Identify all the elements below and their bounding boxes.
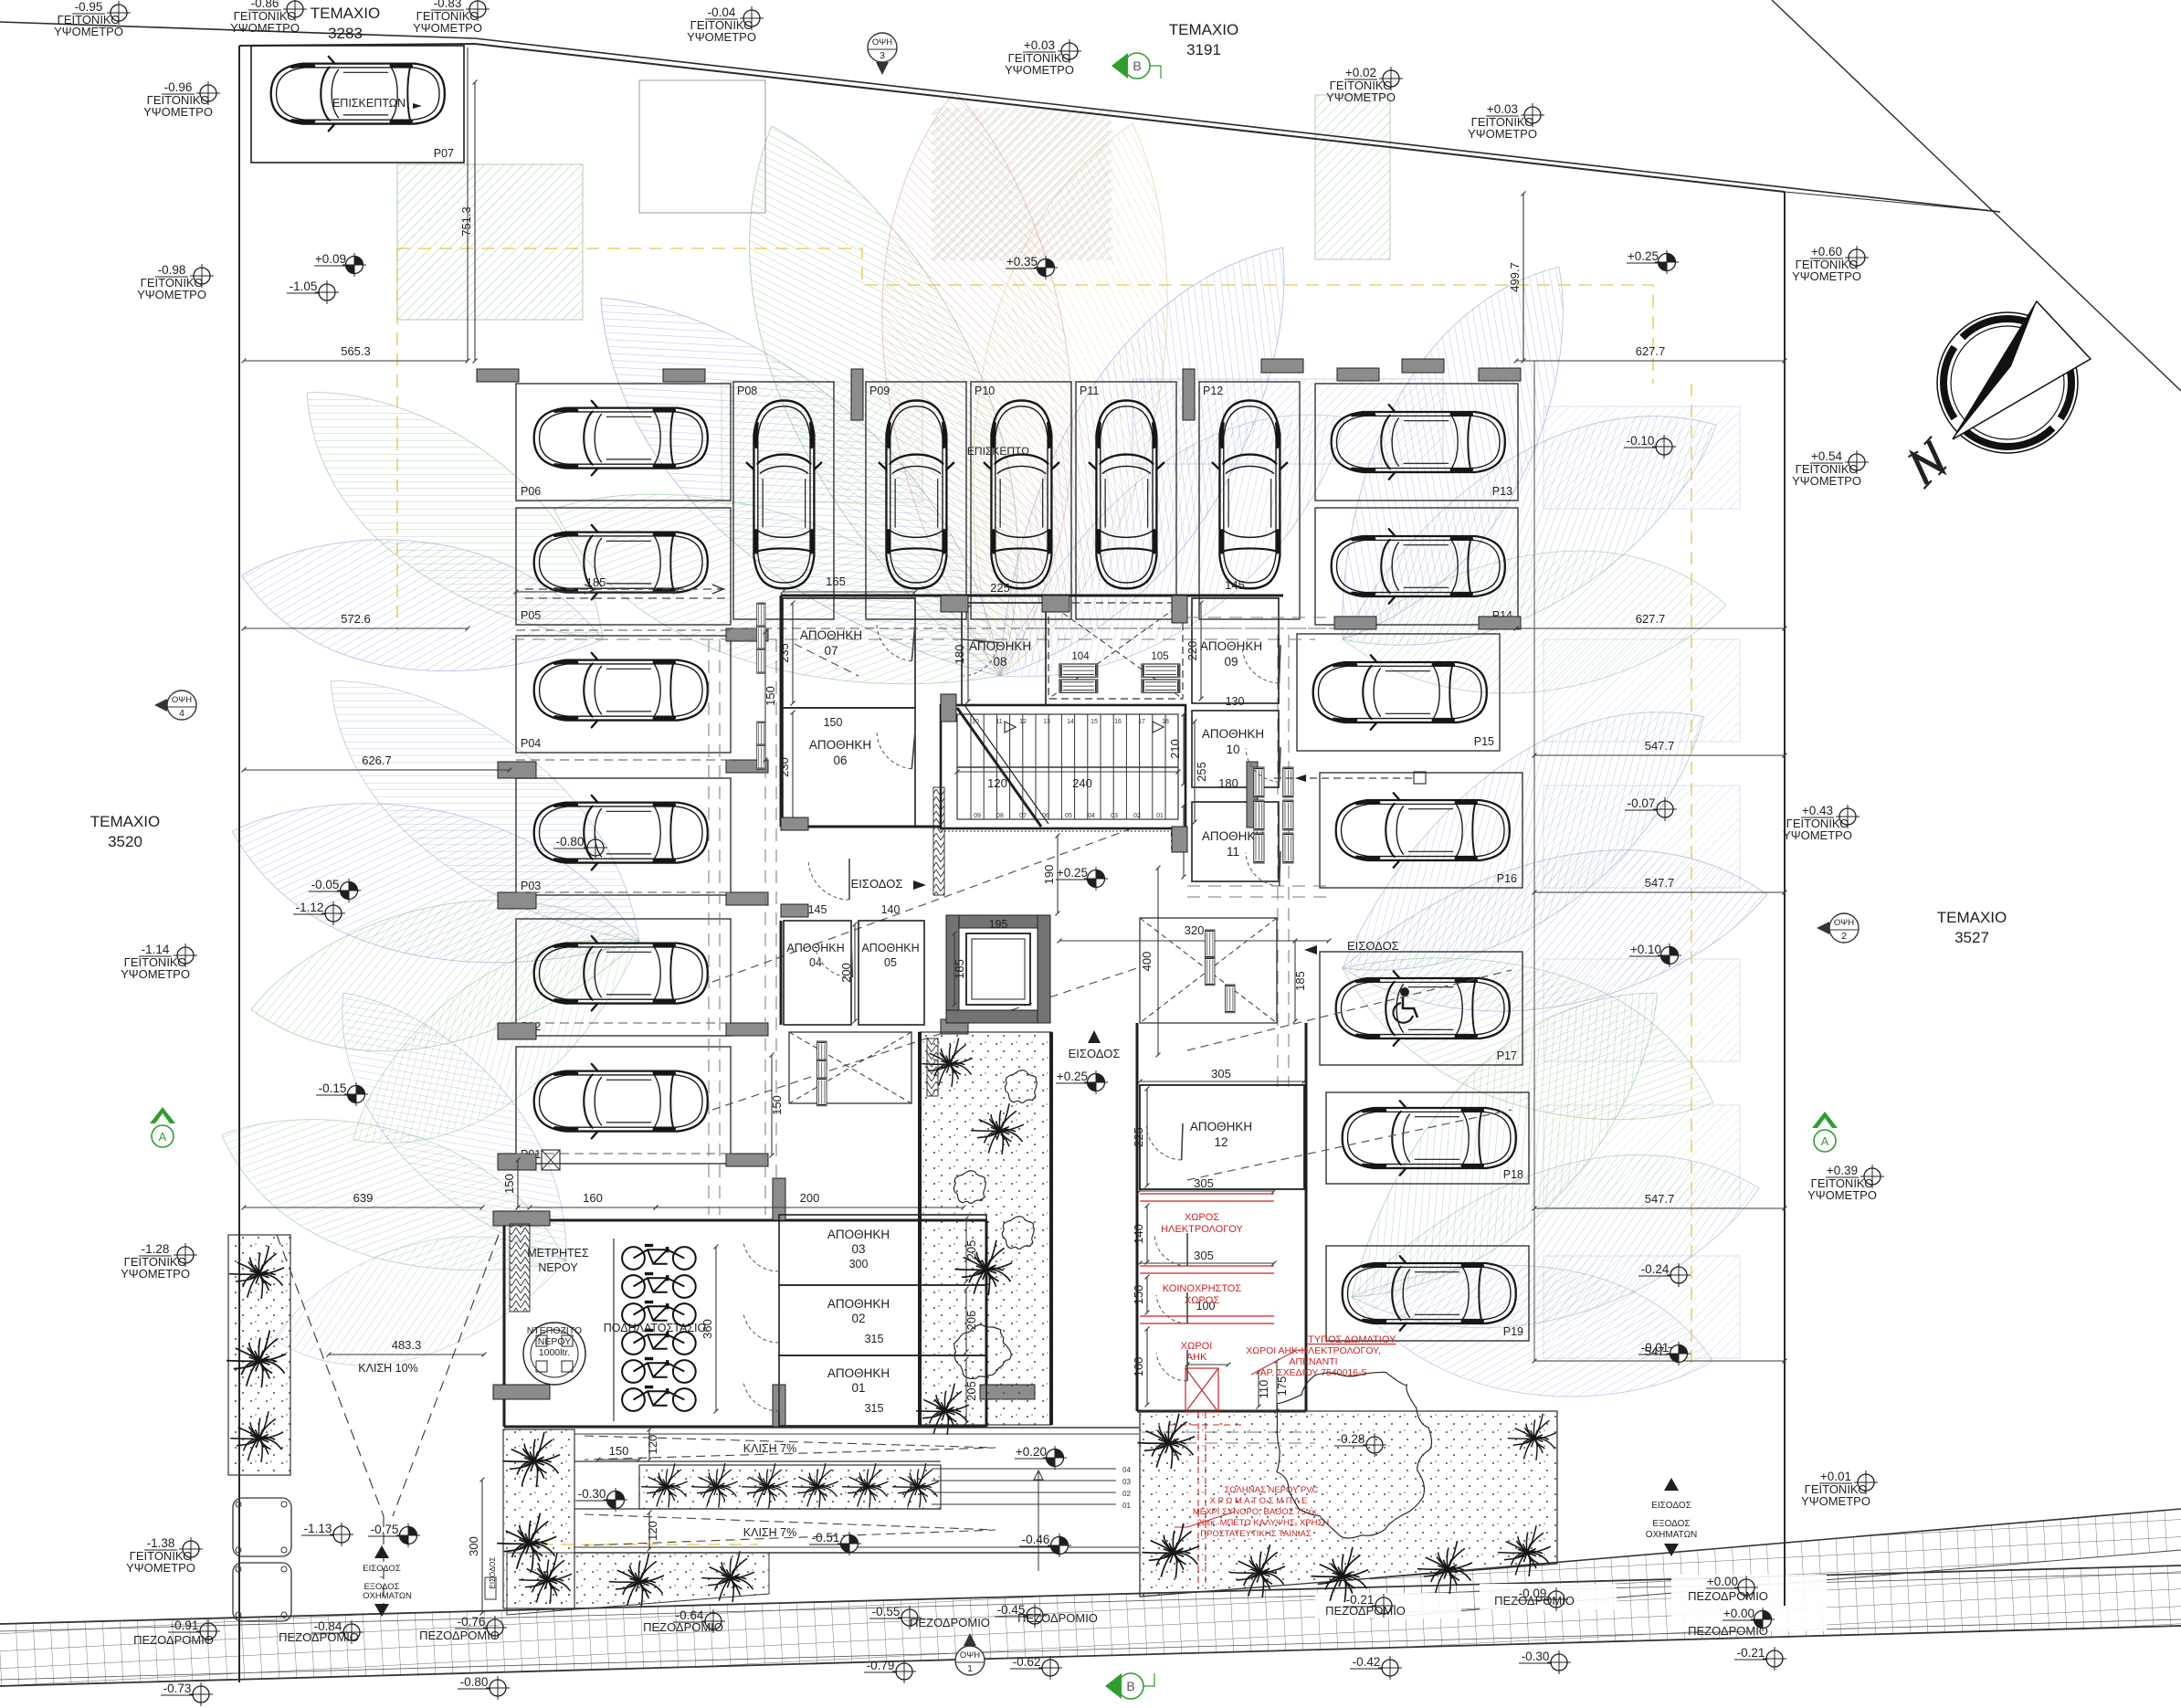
svg-text:160: 160 bbox=[583, 1191, 603, 1205]
svg-text:195: 195 bbox=[989, 918, 1008, 931]
svg-text:ΥΨΟΜΕΤΡΟ: ΥΨΟΜΕΤΡΟ bbox=[1792, 269, 1861, 283]
svg-text:03: 03 bbox=[1122, 1478, 1131, 1486]
svg-text:ΗΛΕΚΤΡΟΛΟΓΟΥ: ΗΛΕΚΤΡΟΛΟΓΟΥ bbox=[1161, 1224, 1243, 1235]
svg-text:320: 320 bbox=[1185, 923, 1205, 937]
svg-text:P10: P10 bbox=[975, 385, 995, 397]
svg-text:ΝΤΕΠΟΖΙΤΟ: ΝΤΕΠΟΖΙΤΟ bbox=[527, 1325, 582, 1336]
svg-text:-0.62: -0.62 bbox=[1013, 1655, 1041, 1669]
svg-text:-0.28: -0.28 bbox=[1337, 1432, 1365, 1446]
svg-text:-0.75: -0.75 bbox=[371, 1523, 399, 1536]
svg-text:-0.45: -0.45 bbox=[997, 1603, 1026, 1617]
svg-text:-0.07: -0.07 bbox=[1628, 796, 1656, 810]
svg-text:P15: P15 bbox=[1474, 735, 1494, 748]
svg-text:ΑΠΟΘΗΚΗ: ΑΠΟΘΗΚΗ bbox=[809, 738, 871, 752]
svg-text:11: 11 bbox=[996, 719, 1002, 725]
svg-text:P03: P03 bbox=[521, 880, 541, 892]
svg-text:120: 120 bbox=[987, 776, 1007, 790]
svg-text:ΧΩΡΟΙ ΑΗΚ-ΗΛΕΚΤΡΟΛΟΓΟΥ,: ΧΩΡΟΙ ΑΗΚ-ΗΛΕΚΤΡΟΛΟΓΟΥ, bbox=[1246, 1345, 1381, 1356]
svg-text:-0.24: -0.24 bbox=[1641, 1262, 1670, 1276]
svg-text:-1.13: -1.13 bbox=[304, 1522, 332, 1535]
svg-text:626.7: 626.7 bbox=[362, 754, 392, 767]
svg-text:07: 07 bbox=[1019, 813, 1027, 819]
svg-text:10: 10 bbox=[972, 719, 979, 725]
svg-text:240: 240 bbox=[1072, 776, 1092, 790]
svg-text:547.7: 547.7 bbox=[1645, 1192, 1675, 1206]
svg-text:ΤΕΜΑΧΙΟ: ΤΕΜΑΧΙΟ bbox=[1937, 909, 2007, 926]
svg-text:ΕΠΙΣΚΕΠΤΩΝ: ΕΠΙΣΚΕΠΤΩΝ bbox=[332, 97, 406, 110]
svg-text:130: 130 bbox=[1226, 695, 1245, 708]
svg-text:150: 150 bbox=[609, 1444, 629, 1458]
svg-text:ΕΙΣΟΔΟΣ: ΕΙΣΟΔΟΣ bbox=[1069, 1047, 1121, 1060]
svg-text:-0.30: -0.30 bbox=[1522, 1650, 1550, 1663]
svg-text:547.7: 547.7 bbox=[1645, 876, 1675, 890]
svg-text:ΟΨΗ: ΟΨΗ bbox=[960, 1650, 980, 1661]
svg-text:ΥΨΟΜΕΤΡΟ: ΥΨΟΜΕΤΡΟ bbox=[54, 25, 123, 38]
svg-text:-0.84: -0.84 bbox=[314, 1619, 342, 1633]
svg-text:09: 09 bbox=[974, 813, 981, 819]
svg-text:145: 145 bbox=[808, 903, 827, 916]
svg-text:305: 305 bbox=[1194, 1176, 1214, 1190]
svg-text:ΠΟΔΗΛΑΤΟΣΤΑΣΙΟ: ΠΟΔΗΛΑΤΟΣΤΑΣΙΟ bbox=[604, 1322, 707, 1334]
svg-text:-0.96: -0.96 bbox=[164, 80, 193, 94]
svg-text:225: 225 bbox=[990, 581, 1010, 595]
svg-text:400: 400 bbox=[1140, 952, 1154, 972]
svg-text:ΜΕΤΡΗΤΕΣ: ΜΕΤΡΗΤΕΣ bbox=[527, 1247, 589, 1260]
svg-text:ΧΩΡΟΣ: ΧΩΡΟΣ bbox=[1185, 1295, 1219, 1306]
svg-text:180: 180 bbox=[953, 645, 966, 665]
svg-text:+0.43: +0.43 bbox=[1802, 804, 1833, 817]
svg-text:P08: P08 bbox=[737, 385, 757, 397]
svg-text:08: 08 bbox=[996, 813, 1004, 819]
svg-text:547.7: 547.7 bbox=[1645, 739, 1675, 753]
svg-text:-1.12: -1.12 bbox=[296, 901, 324, 914]
svg-text:B: B bbox=[1133, 58, 1141, 73]
svg-text:ΠΕΖΟΔΡΟΜΙΟ: ΠΕΖΟΔΡΟΜΙΟ bbox=[1688, 1589, 1768, 1603]
svg-text:+0.20: +0.20 bbox=[1016, 1445, 1047, 1459]
svg-text:-0.21: -0.21 bbox=[1346, 1593, 1375, 1607]
svg-text:ΥΨΟΜΕΤΡΟ: ΥΨΟΜΕΤΡΟ bbox=[687, 30, 756, 44]
svg-text:-0.05: -0.05 bbox=[311, 878, 340, 891]
svg-text:-0.09: -0.09 bbox=[1519, 1587, 1547, 1600]
svg-text:-0.04: -0.04 bbox=[708, 5, 736, 19]
svg-text:-0.10: -0.10 bbox=[1627, 434, 1655, 448]
svg-text:ΥΨΟΜΕΤΡΟ: ΥΨΟΜΕΤΡΟ bbox=[1326, 90, 1396, 104]
svg-text:P11: P11 bbox=[1080, 385, 1099, 397]
svg-text:12: 12 bbox=[1019, 719, 1027, 725]
svg-text:ΟΨΗ: ΟΨΗ bbox=[172, 695, 192, 705]
svg-text:P09: P09 bbox=[869, 385, 890, 397]
svg-text:ΤΕΜΑΧΙΟ: ΤΕΜΑΧΙΟ bbox=[311, 5, 381, 22]
svg-text:01: 01 bbox=[1122, 1502, 1131, 1510]
svg-text:-0.01: -0.01 bbox=[1641, 1341, 1670, 1355]
svg-text:P16: P16 bbox=[1497, 872, 1517, 885]
svg-text:ΥΨΟΜΕΤΡΟ: ΥΨΟΜΕΤΡΟ bbox=[413, 21, 482, 35]
svg-text:ΥΨΟΜΕΤΡΟ: ΥΨΟΜΕΤΡΟ bbox=[121, 1267, 190, 1281]
svg-text:190: 190 bbox=[1042, 865, 1056, 885]
svg-text:+0.39: +0.39 bbox=[1827, 1164, 1858, 1177]
svg-text:ΟΨΗ: ΟΨΗ bbox=[1834, 918, 1854, 928]
svg-text:ΥΨΟΜΕΤΡΟ: ΥΨΟΜΕΤΡΟ bbox=[1468, 127, 1537, 141]
svg-text:ΤΥΠΟΣ ΔΩΜΑΤΙΟΥ: ΤΥΠΟΣ ΔΩΜΑΤΙΟΥ bbox=[1308, 1334, 1396, 1345]
svg-text:180: 180 bbox=[1218, 776, 1238, 790]
svg-text:ΑΠΟΘΗΚΗ: ΑΠΟΘΗΚΗ bbox=[827, 1366, 890, 1380]
svg-text:150: 150 bbox=[824, 716, 843, 729]
svg-text:-0.73: -0.73 bbox=[163, 1682, 192, 1695]
svg-text:+0.60: +0.60 bbox=[1811, 245, 1842, 258]
svg-text:300: 300 bbox=[849, 1258, 869, 1270]
svg-text:-1.28: -1.28 bbox=[142, 1242, 170, 1256]
svg-text:A: A bbox=[159, 1130, 167, 1144]
svg-text:160: 160 bbox=[1132, 1357, 1145, 1377]
svg-text:751.3: 751.3 bbox=[459, 206, 473, 237]
svg-text:07: 07 bbox=[824, 644, 838, 658]
svg-text:3: 3 bbox=[880, 50, 885, 61]
svg-text:572.6: 572.6 bbox=[341, 612, 371, 626]
svg-text:16: 16 bbox=[1114, 719, 1122, 725]
svg-text:105: 105 bbox=[1151, 651, 1168, 662]
svg-text:01: 01 bbox=[1156, 813, 1164, 819]
svg-text:3191: 3191 bbox=[1186, 41, 1221, 58]
svg-text:ΚΛΙΣΗ 10%: ΚΛΙΣΗ 10% bbox=[358, 1362, 417, 1375]
svg-text:ΟΧΗΜΑΤΩΝ: ΟΧΗΜΑΤΩΝ bbox=[363, 1591, 412, 1601]
svg-text:ΤΕΜΑΧΙΟ: ΤΕΜΑΧΙΟ bbox=[1169, 21, 1239, 38]
svg-text:200: 200 bbox=[839, 963, 853, 983]
svg-text:ΑΠΟΘΗΚΗ: ΑΠΟΘΗΚΗ bbox=[827, 1228, 890, 1241]
svg-text:ΕΙΣΟΔΟΣ: ΕΙΣΟΔΟΣ bbox=[1651, 1501, 1691, 1511]
svg-text:+0.25: +0.25 bbox=[1057, 866, 1088, 880]
svg-text:220: 220 bbox=[1185, 641, 1199, 661]
svg-text:230: 230 bbox=[777, 757, 791, 777]
svg-text:P13: P13 bbox=[1492, 485, 1512, 498]
svg-text:-0.91: -0.91 bbox=[171, 1618, 199, 1632]
svg-text:ΕΠΙΣΚΕΠΤΩ: ΕΠΙΣΚΕΠΤΩ bbox=[967, 445, 1029, 458]
svg-text:175: 175 bbox=[1275, 1376, 1289, 1397]
svg-text:200: 200 bbox=[800, 1191, 820, 1205]
svg-text:150: 150 bbox=[502, 1174, 516, 1194]
svg-text:627.7: 627.7 bbox=[1636, 612, 1666, 626]
svg-text:483.3: 483.3 bbox=[392, 1338, 422, 1352]
svg-text:ΚΛΙΣΗ 7%: ΚΛΙΣΗ 7% bbox=[743, 1526, 796, 1539]
svg-text:120: 120 bbox=[646, 1521, 659, 1541]
svg-text:02: 02 bbox=[1122, 1490, 1131, 1498]
svg-text:02: 02 bbox=[851, 1312, 865, 1325]
svg-text:ΥΨΟΜΕΤΡΟ: ΥΨΟΜΕΤΡΟ bbox=[230, 21, 300, 35]
svg-text:ΑΠΟΘΗΚΗ: ΑΠΟΘΗΚΗ bbox=[1190, 1120, 1252, 1133]
svg-text:-0.76: -0.76 bbox=[458, 1615, 486, 1629]
svg-text:05: 05 bbox=[1065, 813, 1072, 819]
svg-text:P05: P05 bbox=[521, 609, 541, 622]
svg-text:315: 315 bbox=[865, 1402, 884, 1415]
svg-text:-1.14: -1.14 bbox=[142, 943, 170, 956]
svg-text:140: 140 bbox=[881, 903, 901, 916]
svg-text:ΥΨΟΜΕΤΡΟ: ΥΨΟΜΕΤΡΟ bbox=[126, 1561, 195, 1575]
svg-text:B: B bbox=[1126, 1679, 1134, 1693]
svg-text:02: 02 bbox=[1133, 813, 1141, 819]
svg-text:210: 210 bbox=[1168, 739, 1182, 759]
svg-text:-0.46: -0.46 bbox=[1022, 1533, 1050, 1546]
svg-text:150: 150 bbox=[764, 686, 777, 706]
svg-text:1: 1 bbox=[967, 1663, 973, 1674]
svg-text:300: 300 bbox=[467, 1536, 480, 1556]
svg-text:P17: P17 bbox=[1497, 1049, 1517, 1062]
svg-text:ΠΕΖΟΔΡΟΜΙΟ: ΠΕΖΟΔΡΟΜΙΟ bbox=[1688, 1624, 1768, 1638]
svg-text:ΟΧΗΜΑΤΩΝ: ΟΧΗΜΑΤΩΝ bbox=[1646, 1530, 1698, 1540]
svg-text:1000ltr.: 1000ltr. bbox=[539, 1347, 570, 1358]
svg-text:2: 2 bbox=[1841, 931, 1847, 942]
svg-text:04: 04 bbox=[809, 956, 822, 969]
svg-text:01: 01 bbox=[851, 1381, 865, 1395]
svg-text:565.3: 565.3 bbox=[341, 344, 371, 358]
svg-text:-0.21: -0.21 bbox=[1737, 1646, 1765, 1660]
svg-text:ΥΨΟΜΕΤΡΟ: ΥΨΟΜΕΤΡΟ bbox=[1005, 63, 1074, 77]
svg-text:305: 305 bbox=[1211, 1067, 1231, 1081]
svg-text:P19: P19 bbox=[1503, 1325, 1523, 1338]
svg-text:ΕΙΣΟΔΟΣ: ΕΙΣΟΔΟΣ bbox=[1347, 939, 1399, 953]
svg-text:ΑΠΟΘΗΚΗ: ΑΠΟΘΗΚΗ bbox=[827, 1297, 890, 1311]
svg-text:-0.30: -0.30 bbox=[578, 1487, 606, 1501]
svg-text:120: 120 bbox=[646, 1435, 659, 1455]
svg-text:ΥΨΟΜΕΤΡΟ: ΥΨΟΜΕΤΡΟ bbox=[1801, 1494, 1870, 1508]
svg-text:14: 14 bbox=[1067, 719, 1074, 725]
svg-text:150: 150 bbox=[1132, 1285, 1145, 1305]
svg-text:+0.35: +0.35 bbox=[1006, 255, 1038, 269]
svg-text:ΑΠΟΘΗΚΗ: ΑΠΟΘΗΚΗ bbox=[1200, 639, 1262, 653]
svg-text:499.7: 499.7 bbox=[1508, 262, 1522, 292]
svg-text:110: 110 bbox=[1257, 1380, 1270, 1399]
svg-text:13: 13 bbox=[1043, 719, 1050, 725]
svg-text:+0.03: +0.03 bbox=[1024, 38, 1055, 52]
svg-text:+0.00: +0.00 bbox=[1707, 1575, 1738, 1588]
svg-text:ΑΠΟΘΗΚΗ: ΑΠΟΘΗΚΗ bbox=[1202, 727, 1264, 741]
svg-text:ΑΠΟΘΗΚΗ: ΑΠΟΘΗΚΗ bbox=[800, 628, 862, 642]
svg-text:ΥΨΟΜΕΤΡΟ: ΥΨΟΜΕΤΡΟ bbox=[1783, 828, 1852, 842]
svg-text:-1.05: -1.05 bbox=[290, 279, 318, 293]
svg-text:4: 4 bbox=[179, 708, 184, 719]
svg-text:+0.54: +0.54 bbox=[1811, 449, 1843, 463]
svg-text:+0.02: +0.02 bbox=[1345, 66, 1376, 79]
svg-text:04: 04 bbox=[1088, 813, 1095, 819]
svg-text:-0.51: -0.51 bbox=[812, 1531, 840, 1545]
svg-text:639: 639 bbox=[353, 1191, 374, 1205]
svg-text:ΟΨΗ: ΟΨΗ bbox=[872, 37, 892, 47]
svg-text:+0.09: +0.09 bbox=[315, 252, 346, 266]
svg-text:-0.98: -0.98 bbox=[158, 263, 186, 277]
svg-text:11: 11 bbox=[1227, 845, 1239, 859]
svg-text:+0.01: +0.01 bbox=[1820, 1470, 1851, 1483]
svg-text:ΝΕΡΟΥ: ΝΕΡΟΥ bbox=[538, 1336, 571, 1347]
svg-text:ΧΩΡΟΣ: ΧΩΡΟΣ bbox=[1185, 1212, 1219, 1223]
svg-text:04: 04 bbox=[1122, 1466, 1131, 1474]
svg-text:+0.25: +0.25 bbox=[1057, 1070, 1088, 1083]
svg-text:ΥΨΟΜΕΤΡΟ: ΥΨΟΜΕΤΡΟ bbox=[143, 105, 213, 119]
svg-text:ΑΗΚ: ΑΗΚ bbox=[1186, 1352, 1207, 1363]
svg-text:-0.42: -0.42 bbox=[1353, 1655, 1381, 1669]
svg-text:305: 305 bbox=[1194, 1249, 1214, 1262]
svg-text:+0.03: +0.03 bbox=[1487, 102, 1518, 116]
svg-text:06: 06 bbox=[833, 754, 847, 767]
svg-text:140: 140 bbox=[1132, 1224, 1145, 1244]
svg-text:09: 09 bbox=[1224, 655, 1238, 669]
svg-text:+0.25: +0.25 bbox=[1628, 249, 1659, 263]
svg-text:ΝΕΡΟΥ: ΝΕΡΟΥ bbox=[538, 1261, 578, 1274]
svg-text:ΥΨΟΜΕΤΡΟ: ΥΨΟΜΕΤΡΟ bbox=[121, 967, 190, 981]
svg-text:P04: P04 bbox=[521, 737, 541, 750]
svg-text:-0.80: -0.80 bbox=[460, 1675, 489, 1689]
svg-text:185: 185 bbox=[1293, 971, 1307, 991]
svg-text:3283: 3283 bbox=[328, 25, 363, 42]
svg-text:-0.55: -0.55 bbox=[872, 1605, 901, 1618]
svg-text:P07: P07 bbox=[434, 147, 454, 160]
svg-text:17: 17 bbox=[1138, 719, 1145, 725]
svg-text:-0.15: -0.15 bbox=[319, 1081, 347, 1095]
svg-text:06: 06 bbox=[1042, 813, 1049, 819]
svg-text:-0.80: -0.80 bbox=[556, 835, 585, 849]
svg-text:315: 315 bbox=[865, 1333, 884, 1345]
svg-text:104: 104 bbox=[1071, 651, 1090, 662]
svg-text:ΕΞΟΔΟΣ: ΕΞΟΔΟΣ bbox=[1652, 1519, 1690, 1529]
svg-text:ΚΟΙΝΟΧΡΗΣΤΟΣ: ΚΟΙΝΟΧΡΗΣΤΟΣ bbox=[1163, 1283, 1242, 1294]
svg-text:ΠΕΖΟΔΡΟΜΙΟ: ΠΕΖΟΔΡΟΜΙΟ bbox=[910, 1616, 990, 1629]
svg-text:03: 03 bbox=[851, 1242, 865, 1256]
svg-text:18: 18 bbox=[1162, 719, 1169, 725]
svg-text:165: 165 bbox=[826, 575, 846, 588]
svg-text:-0.95: -0.95 bbox=[75, 0, 103, 14]
svg-text:05: 05 bbox=[884, 956, 897, 969]
svg-text:627.7: 627.7 bbox=[1636, 344, 1666, 358]
svg-text:150: 150 bbox=[770, 1095, 784, 1115]
svg-text:ΥΨΟΜΕΤΡΟ: ΥΨΟΜΕΤΡΟ bbox=[137, 288, 206, 301]
svg-text:P12: P12 bbox=[1203, 385, 1223, 397]
svg-text:3520: 3520 bbox=[108, 833, 142, 850]
svg-text:10: 10 bbox=[1226, 743, 1239, 756]
svg-text:ΚΛΙΣΗ 7%: ΚΛΙΣΗ 7% bbox=[743, 1442, 796, 1455]
svg-text:-0.79: -0.79 bbox=[867, 1659, 895, 1672]
svg-text:12: 12 bbox=[1214, 1135, 1227, 1149]
svg-text:ΠΕΖΟΔΡΟΜΙΟ: ΠΕΖΟΔΡΟΜΙΟ bbox=[1017, 1611, 1098, 1625]
svg-text:ΧΩΡΟΙ: ΧΩΡΟΙ bbox=[1181, 1341, 1213, 1352]
svg-text:03: 03 bbox=[1111, 813, 1118, 819]
svg-text:08: 08 bbox=[993, 655, 1006, 669]
svg-text:-1.38: -1.38 bbox=[147, 1536, 175, 1550]
svg-text:3527: 3527 bbox=[1954, 929, 1989, 946]
svg-text:+0.00: +0.00 bbox=[1723, 1607, 1754, 1620]
svg-text:A: A bbox=[1821, 1134, 1829, 1148]
svg-text:ΤΕΜΑΧΙΟ: ΤΕΜΑΧΙΟ bbox=[90, 813, 161, 830]
svg-text:ΑΠΟΘΗΚΗ: ΑΠΟΘΗΚΗ bbox=[861, 942, 919, 954]
svg-text:255: 255 bbox=[1195, 762, 1208, 782]
svg-text:P18: P18 bbox=[1503, 1168, 1523, 1181]
svg-text:P06: P06 bbox=[521, 485, 541, 498]
svg-text:ΥΨΟΜΕΤΡΟ: ΥΨΟΜΕΤΡΟ bbox=[1807, 1188, 1877, 1202]
svg-text:185: 185 bbox=[953, 959, 966, 979]
svg-text:ΑΠΕΝΑΝΤΙ: ΑΠΕΝΑΝΤΙ bbox=[1289, 1356, 1337, 1367]
svg-text:ΕΙΣΟΔΟΣ: ΕΙΣΟΔΟΣ bbox=[851, 877, 903, 891]
svg-text:15: 15 bbox=[1090, 719, 1098, 725]
svg-text:235: 235 bbox=[777, 643, 791, 663]
svg-text:+0.10: +0.10 bbox=[1630, 943, 1661, 956]
svg-text:145: 145 bbox=[1225, 578, 1245, 592]
svg-text:360: 360 bbox=[701, 1319, 714, 1339]
svg-text:ΥΨΟΜΕΤΡΟ: ΥΨΟΜΕΤΡΟ bbox=[1792, 474, 1861, 488]
svg-text:-0.64: -0.64 bbox=[676, 1608, 704, 1622]
